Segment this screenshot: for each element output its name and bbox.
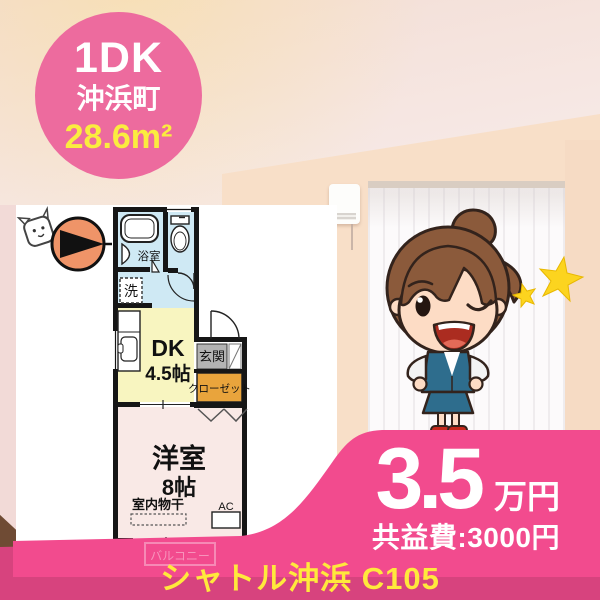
rent-amount: 3.5 [375, 436, 480, 522]
property-name: シャトル沖浜 C105 [0, 553, 600, 598]
rent-unit: 万円 [494, 477, 560, 517]
listing-card: N [0, 0, 600, 600]
town-name: 沖浜町 [76, 81, 160, 117]
price-block: 3.5 万円 共益費:3000円 [320, 436, 560, 556]
floor-area: 28.6m² [65, 117, 173, 157]
layout-type: 1DK [74, 35, 163, 81]
layout-badge: 1DK 沖浜町 28.6m² [35, 12, 202, 179]
common-fee: 共益費:3000円 [320, 516, 560, 556]
